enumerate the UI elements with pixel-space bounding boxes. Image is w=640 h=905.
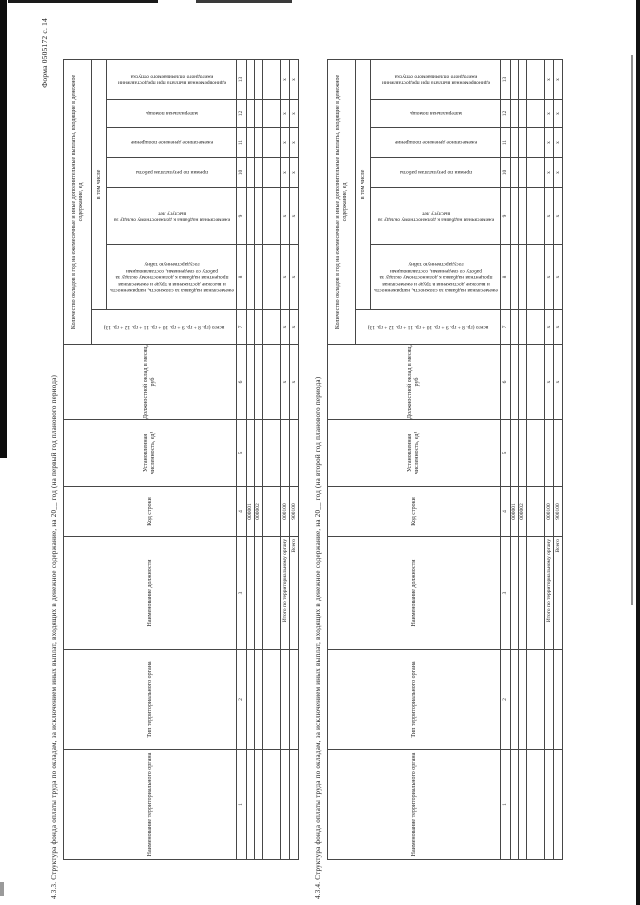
col-header-3: Наименование должности bbox=[328, 537, 501, 650]
row-code: 000001 bbox=[511, 487, 519, 537]
cell-x-mark: x bbox=[281, 345, 290, 420]
empty-cell bbox=[519, 537, 527, 650]
empty-cell bbox=[263, 310, 281, 345]
empty-cell bbox=[527, 750, 545, 860]
empty-cell bbox=[527, 158, 545, 188]
empty-cell bbox=[511, 158, 519, 188]
row-code: 000001 bbox=[247, 487, 255, 537]
empty-cell bbox=[263, 100, 281, 128]
cell-x-mark: x bbox=[290, 100, 299, 128]
cell-x-mark: x bbox=[290, 59, 299, 99]
col-number-5: 5 bbox=[501, 420, 511, 487]
row-code: 000100 bbox=[545, 487, 554, 537]
col-header-8: ежемесячная надбавка за сложность, напря… bbox=[371, 245, 501, 310]
empty-cell bbox=[263, 158, 281, 188]
cell-x-mark: x bbox=[554, 128, 563, 158]
col-header-12-vertical-text: материальная помощь bbox=[110, 110, 234, 116]
table-row bbox=[527, 59, 545, 859]
empty-cell bbox=[255, 650, 263, 750]
empty-cell bbox=[511, 650, 519, 750]
empty-cell bbox=[511, 345, 519, 420]
row-code: 900100 bbox=[554, 487, 563, 537]
col-header-2: Тип территориального органа bbox=[328, 650, 501, 750]
empty-cell bbox=[255, 128, 263, 158]
cell-x-mark: x bbox=[281, 59, 290, 99]
col-number-10: 10 bbox=[501, 158, 511, 188]
cell-x-mark: x bbox=[281, 100, 290, 128]
cell-x-mark: x bbox=[290, 128, 299, 158]
col-header-13: единовременная выплата при предоставлени… bbox=[371, 59, 501, 99]
section-4-3-3: 4.3.3. Структура фонда оплаты труда по о… bbox=[50, 0, 299, 905]
empty-cell bbox=[255, 59, 263, 99]
col-number-3: 3 bbox=[501, 537, 511, 650]
empty-cell bbox=[290, 420, 299, 487]
col-number-13: 13 bbox=[501, 59, 511, 99]
col-header-4: Код строки bbox=[64, 487, 237, 537]
empty-cell bbox=[263, 345, 281, 420]
table-row: 000001 bbox=[511, 59, 519, 859]
col-number-4: 4 bbox=[501, 487, 511, 537]
empty-cell bbox=[247, 420, 255, 487]
empty-cell bbox=[290, 650, 299, 750]
col-header-10: премии по результатам работы bbox=[371, 158, 501, 188]
table-row: 000002 bbox=[519, 59, 527, 859]
empty-cell bbox=[511, 420, 519, 487]
empty-cell bbox=[545, 750, 554, 860]
empty-cell bbox=[247, 128, 255, 158]
empty-cell bbox=[263, 650, 281, 750]
empty-cell bbox=[255, 245, 263, 310]
empty-cell bbox=[527, 420, 545, 487]
col-number-4: 4 bbox=[237, 487, 247, 537]
cell-x-mark: x bbox=[545, 59, 554, 99]
empty-cell bbox=[511, 310, 519, 345]
empty-cell bbox=[263, 245, 281, 310]
empty-cell bbox=[519, 158, 527, 188]
row-label: Всего bbox=[554, 537, 563, 650]
empty-cell bbox=[519, 345, 527, 420]
empty-cell bbox=[290, 750, 299, 860]
col-header-12: материальная помощь bbox=[371, 100, 501, 128]
empty-cell bbox=[527, 345, 545, 420]
empty-cell bbox=[247, 59, 255, 99]
cell-x-mark: x bbox=[281, 128, 290, 158]
group-header-qty: Количество окладов в год на ежемесячные … bbox=[328, 59, 356, 344]
col-number-12: 12 bbox=[501, 100, 511, 128]
empty-cell bbox=[527, 487, 545, 537]
empty-cell bbox=[255, 345, 263, 420]
row-label: Итого по территориальному органу bbox=[545, 537, 554, 650]
table-row: Итого по территориальному органу000100xx… bbox=[281, 59, 290, 859]
empty-cell bbox=[527, 650, 545, 750]
cell-x-mark: x bbox=[290, 158, 299, 188]
col-number-9: 9 bbox=[237, 188, 247, 245]
col-header-9-vertical-text: ежемесячная надбавка к должностному окла… bbox=[110, 210, 234, 223]
empty-cell bbox=[263, 59, 281, 99]
section-title: 4.3.4. Структура фонда оплаты труда по о… bbox=[314, 0, 322, 899]
cell-x-mark: x bbox=[554, 59, 563, 99]
empty-cell bbox=[247, 345, 255, 420]
empty-cell bbox=[247, 245, 255, 310]
landscape-sheet: Форма 0505172 с. 14 4.3.3. Структура фон… bbox=[0, 0, 640, 905]
empty-cell bbox=[511, 128, 519, 158]
empty-cell bbox=[511, 100, 519, 128]
empty-cell bbox=[511, 537, 519, 650]
table-row: Всего900100xxxxxxxx bbox=[290, 59, 299, 859]
cell-x-mark: x bbox=[554, 100, 563, 128]
empty-cell bbox=[527, 310, 545, 345]
col-header-13-vertical-text: единовременная выплата при предоставлени… bbox=[110, 73, 234, 86]
empty-cell bbox=[519, 188, 527, 245]
cell-x-mark: x bbox=[290, 245, 299, 310]
empty-cell bbox=[527, 537, 545, 650]
empty-cell bbox=[255, 537, 263, 650]
col-number-2: 2 bbox=[501, 650, 511, 750]
group-header-including: в том числе bbox=[92, 59, 107, 309]
col-number-13: 13 bbox=[237, 59, 247, 99]
empty-cell bbox=[511, 188, 519, 245]
empty-cell bbox=[247, 537, 255, 650]
col-header-10: премии по результатам работы bbox=[107, 158, 237, 188]
col-number-6: 6 bbox=[237, 345, 247, 420]
col-number-9: 9 bbox=[501, 188, 511, 245]
empty-cell bbox=[527, 188, 545, 245]
col-number-7: 7 bbox=[237, 310, 247, 345]
cell-x-mark: x bbox=[545, 310, 554, 345]
col-number-1: 1 bbox=[501, 750, 511, 860]
col-header-8-vertical-text: ежемесячная надбавка за сложность, напря… bbox=[374, 261, 498, 293]
col-header-13-vertical-text: единовременная выплата при предоставлени… bbox=[374, 73, 498, 86]
col-header-1: Наименование территориального органа bbox=[328, 750, 501, 860]
empty-cell bbox=[255, 188, 263, 245]
empty-cell bbox=[247, 158, 255, 188]
empty-cell bbox=[255, 100, 263, 128]
col-header-4: Код строки bbox=[328, 487, 501, 537]
cell-x-mark: x bbox=[281, 188, 290, 245]
empty-cell bbox=[527, 59, 545, 99]
group-header-qty: Количество окладов в год на ежемесячные … bbox=[64, 59, 92, 344]
row-label: Всего bbox=[290, 537, 299, 650]
empty-cell bbox=[281, 750, 290, 860]
empty-cell bbox=[554, 420, 563, 487]
empty-cell bbox=[519, 650, 527, 750]
section-title: 4.3.3. Структура фонда оплаты труда по о… bbox=[50, 0, 58, 899]
empty-cell bbox=[519, 100, 527, 128]
col-header-6: Должностной оклад в месяц, руб bbox=[328, 345, 501, 420]
col-number-11: 11 bbox=[501, 128, 511, 158]
empty-cell bbox=[263, 128, 281, 158]
empty-cell bbox=[255, 158, 263, 188]
empty-cell bbox=[527, 100, 545, 128]
col-header-7: всего (гр. 8 + гр. 9 + гр. 10 + гр. 11 +… bbox=[92, 310, 237, 345]
empty-cell bbox=[263, 750, 281, 860]
row-code: 000002 bbox=[255, 487, 263, 537]
empty-cell bbox=[281, 650, 290, 750]
cell-x-mark: x bbox=[554, 245, 563, 310]
col-number-3: 3 bbox=[237, 537, 247, 650]
empty-cell bbox=[554, 650, 563, 750]
empty-cell bbox=[247, 750, 255, 860]
empty-cell bbox=[263, 537, 281, 650]
col-header-10-vertical-text: премии по результатам работы bbox=[374, 169, 498, 175]
col-header-11: ежемесячное денежное поощрение bbox=[371, 128, 501, 158]
row-label: Итого по территориальному органу bbox=[281, 537, 290, 650]
empty-cell bbox=[255, 310, 263, 345]
col-header-5: Установленная численность, ед¹ bbox=[64, 420, 237, 487]
col-header-13: единовременная выплата при предоставлени… bbox=[107, 59, 237, 99]
cell-x-mark: x bbox=[545, 345, 554, 420]
col-header-11: ежемесячное денежное поощрение bbox=[107, 128, 237, 158]
salary-structure-table: Наименование территориального органаТип … bbox=[327, 59, 563, 860]
empty-cell bbox=[527, 245, 545, 310]
empty-cell bbox=[247, 310, 255, 345]
cell-x-mark: x bbox=[281, 245, 290, 310]
table-row: 000001 bbox=[247, 59, 255, 859]
cell-x-mark: x bbox=[545, 245, 554, 310]
group-header-including: в том числе bbox=[356, 59, 371, 309]
empty-cell bbox=[281, 420, 290, 487]
empty-cell bbox=[519, 245, 527, 310]
col-header-9: ежемесячная надбавка к должностному окла… bbox=[107, 188, 237, 245]
cell-x-mark: x bbox=[290, 188, 299, 245]
empty-cell bbox=[263, 487, 281, 537]
col-header-8-vertical-text: ежемесячная надбавка за сложность, напря… bbox=[110, 261, 234, 293]
col-number-8: 8 bbox=[501, 245, 511, 310]
empty-cell bbox=[545, 650, 554, 750]
cell-x-mark: x bbox=[554, 158, 563, 188]
empty-cell bbox=[511, 750, 519, 860]
empty-cell bbox=[545, 420, 554, 487]
empty-cell bbox=[255, 750, 263, 860]
col-header-9: ежемесячная надбавка к должностному окла… bbox=[371, 188, 501, 245]
col-number-12: 12 bbox=[237, 100, 247, 128]
empty-cell bbox=[519, 750, 527, 860]
empty-cell bbox=[511, 245, 519, 310]
col-header-1: Наименование территориального органа bbox=[64, 750, 237, 860]
salary-structure-table: Наименование территориального органаТип … bbox=[63, 59, 299, 860]
table-row: 000002 bbox=[255, 59, 263, 859]
empty-cell bbox=[247, 650, 255, 750]
empty-cell bbox=[519, 310, 527, 345]
col-number-1: 1 bbox=[237, 750, 247, 860]
row-code: 000002 bbox=[519, 487, 527, 537]
col-header-9-vertical-text: ежемесячная надбавка к должностному окла… bbox=[374, 210, 498, 223]
table-row: Итого по территориальному органу000100xx… bbox=[545, 59, 554, 859]
table-row bbox=[263, 59, 281, 859]
empty-cell bbox=[511, 59, 519, 99]
col-header-3: Наименование должности bbox=[64, 537, 237, 650]
col-header-7-vertical-text: всего (гр. 8 + гр. 9 + гр. 10 + гр. 11 +… bbox=[359, 324, 497, 330]
col-header-12: материальная помощь bbox=[107, 100, 237, 128]
col-header-11-vertical-text: ежемесячное денежное поощрение bbox=[374, 139, 498, 145]
cell-x-mark: x bbox=[290, 310, 299, 345]
empty-cell bbox=[247, 100, 255, 128]
cell-x-mark: x bbox=[545, 158, 554, 188]
col-header-8: ежемесячная надбавка за сложность, напря… bbox=[107, 245, 237, 310]
scanned-form-page: Форма 0505172 с. 14 4.3.3. Структура фон… bbox=[0, 0, 640, 905]
row-code: 900100 bbox=[290, 487, 299, 537]
cell-x-mark: x bbox=[545, 100, 554, 128]
cell-x-mark: x bbox=[545, 128, 554, 158]
form-number-label: Форма 0505172 с. 14 bbox=[40, 18, 49, 88]
col-header-5: Установленная численность, ед¹ bbox=[328, 420, 501, 487]
cell-x-mark: x bbox=[290, 345, 299, 420]
col-header-6: Должностной оклад в месяц, руб bbox=[64, 345, 237, 420]
empty-cell bbox=[263, 420, 281, 487]
cell-x-mark: x bbox=[281, 158, 290, 188]
cell-x-mark: x bbox=[554, 188, 563, 245]
col-header-2: Тип территориального органа bbox=[64, 650, 237, 750]
empty-cell bbox=[255, 420, 263, 487]
col-header-10-vertical-text: премии по результатам работы bbox=[110, 169, 234, 175]
empty-cell bbox=[247, 188, 255, 245]
row-code: 000100 bbox=[281, 487, 290, 537]
col-number-2: 2 bbox=[237, 650, 247, 750]
col-number-11: 11 bbox=[237, 128, 247, 158]
cell-x-mark: x bbox=[545, 188, 554, 245]
col-number-7: 7 bbox=[501, 310, 511, 345]
table-row: Всего900100xxxxxxxx bbox=[554, 59, 563, 859]
empty-cell bbox=[519, 128, 527, 158]
col-header-12-vertical-text: материальная помощь bbox=[374, 110, 498, 116]
empty-cell bbox=[519, 59, 527, 99]
col-number-6: 6 bbox=[501, 345, 511, 420]
empty-cell bbox=[527, 128, 545, 158]
cell-x-mark: x bbox=[281, 310, 290, 345]
col-number-8: 8 bbox=[237, 245, 247, 310]
col-number-5: 5 bbox=[237, 420, 247, 487]
empty-cell bbox=[263, 188, 281, 245]
col-number-10: 10 bbox=[237, 158, 247, 188]
col-header-7: всего (гр. 8 + гр. 9 + гр. 10 + гр. 11 +… bbox=[356, 310, 501, 345]
cell-x-mark: x bbox=[554, 310, 563, 345]
col-header-7-vertical-text: всего (гр. 8 + гр. 9 + гр. 10 + гр. 11 +… bbox=[95, 324, 233, 330]
empty-cell bbox=[519, 420, 527, 487]
section-4-3-4: 4.3.4. Структура фонда оплаты труда по о… bbox=[314, 0, 563, 905]
col-header-11-vertical-text: ежемесячное денежное поощрение bbox=[110, 139, 234, 145]
cell-x-mark: x bbox=[554, 345, 563, 420]
empty-cell bbox=[554, 750, 563, 860]
